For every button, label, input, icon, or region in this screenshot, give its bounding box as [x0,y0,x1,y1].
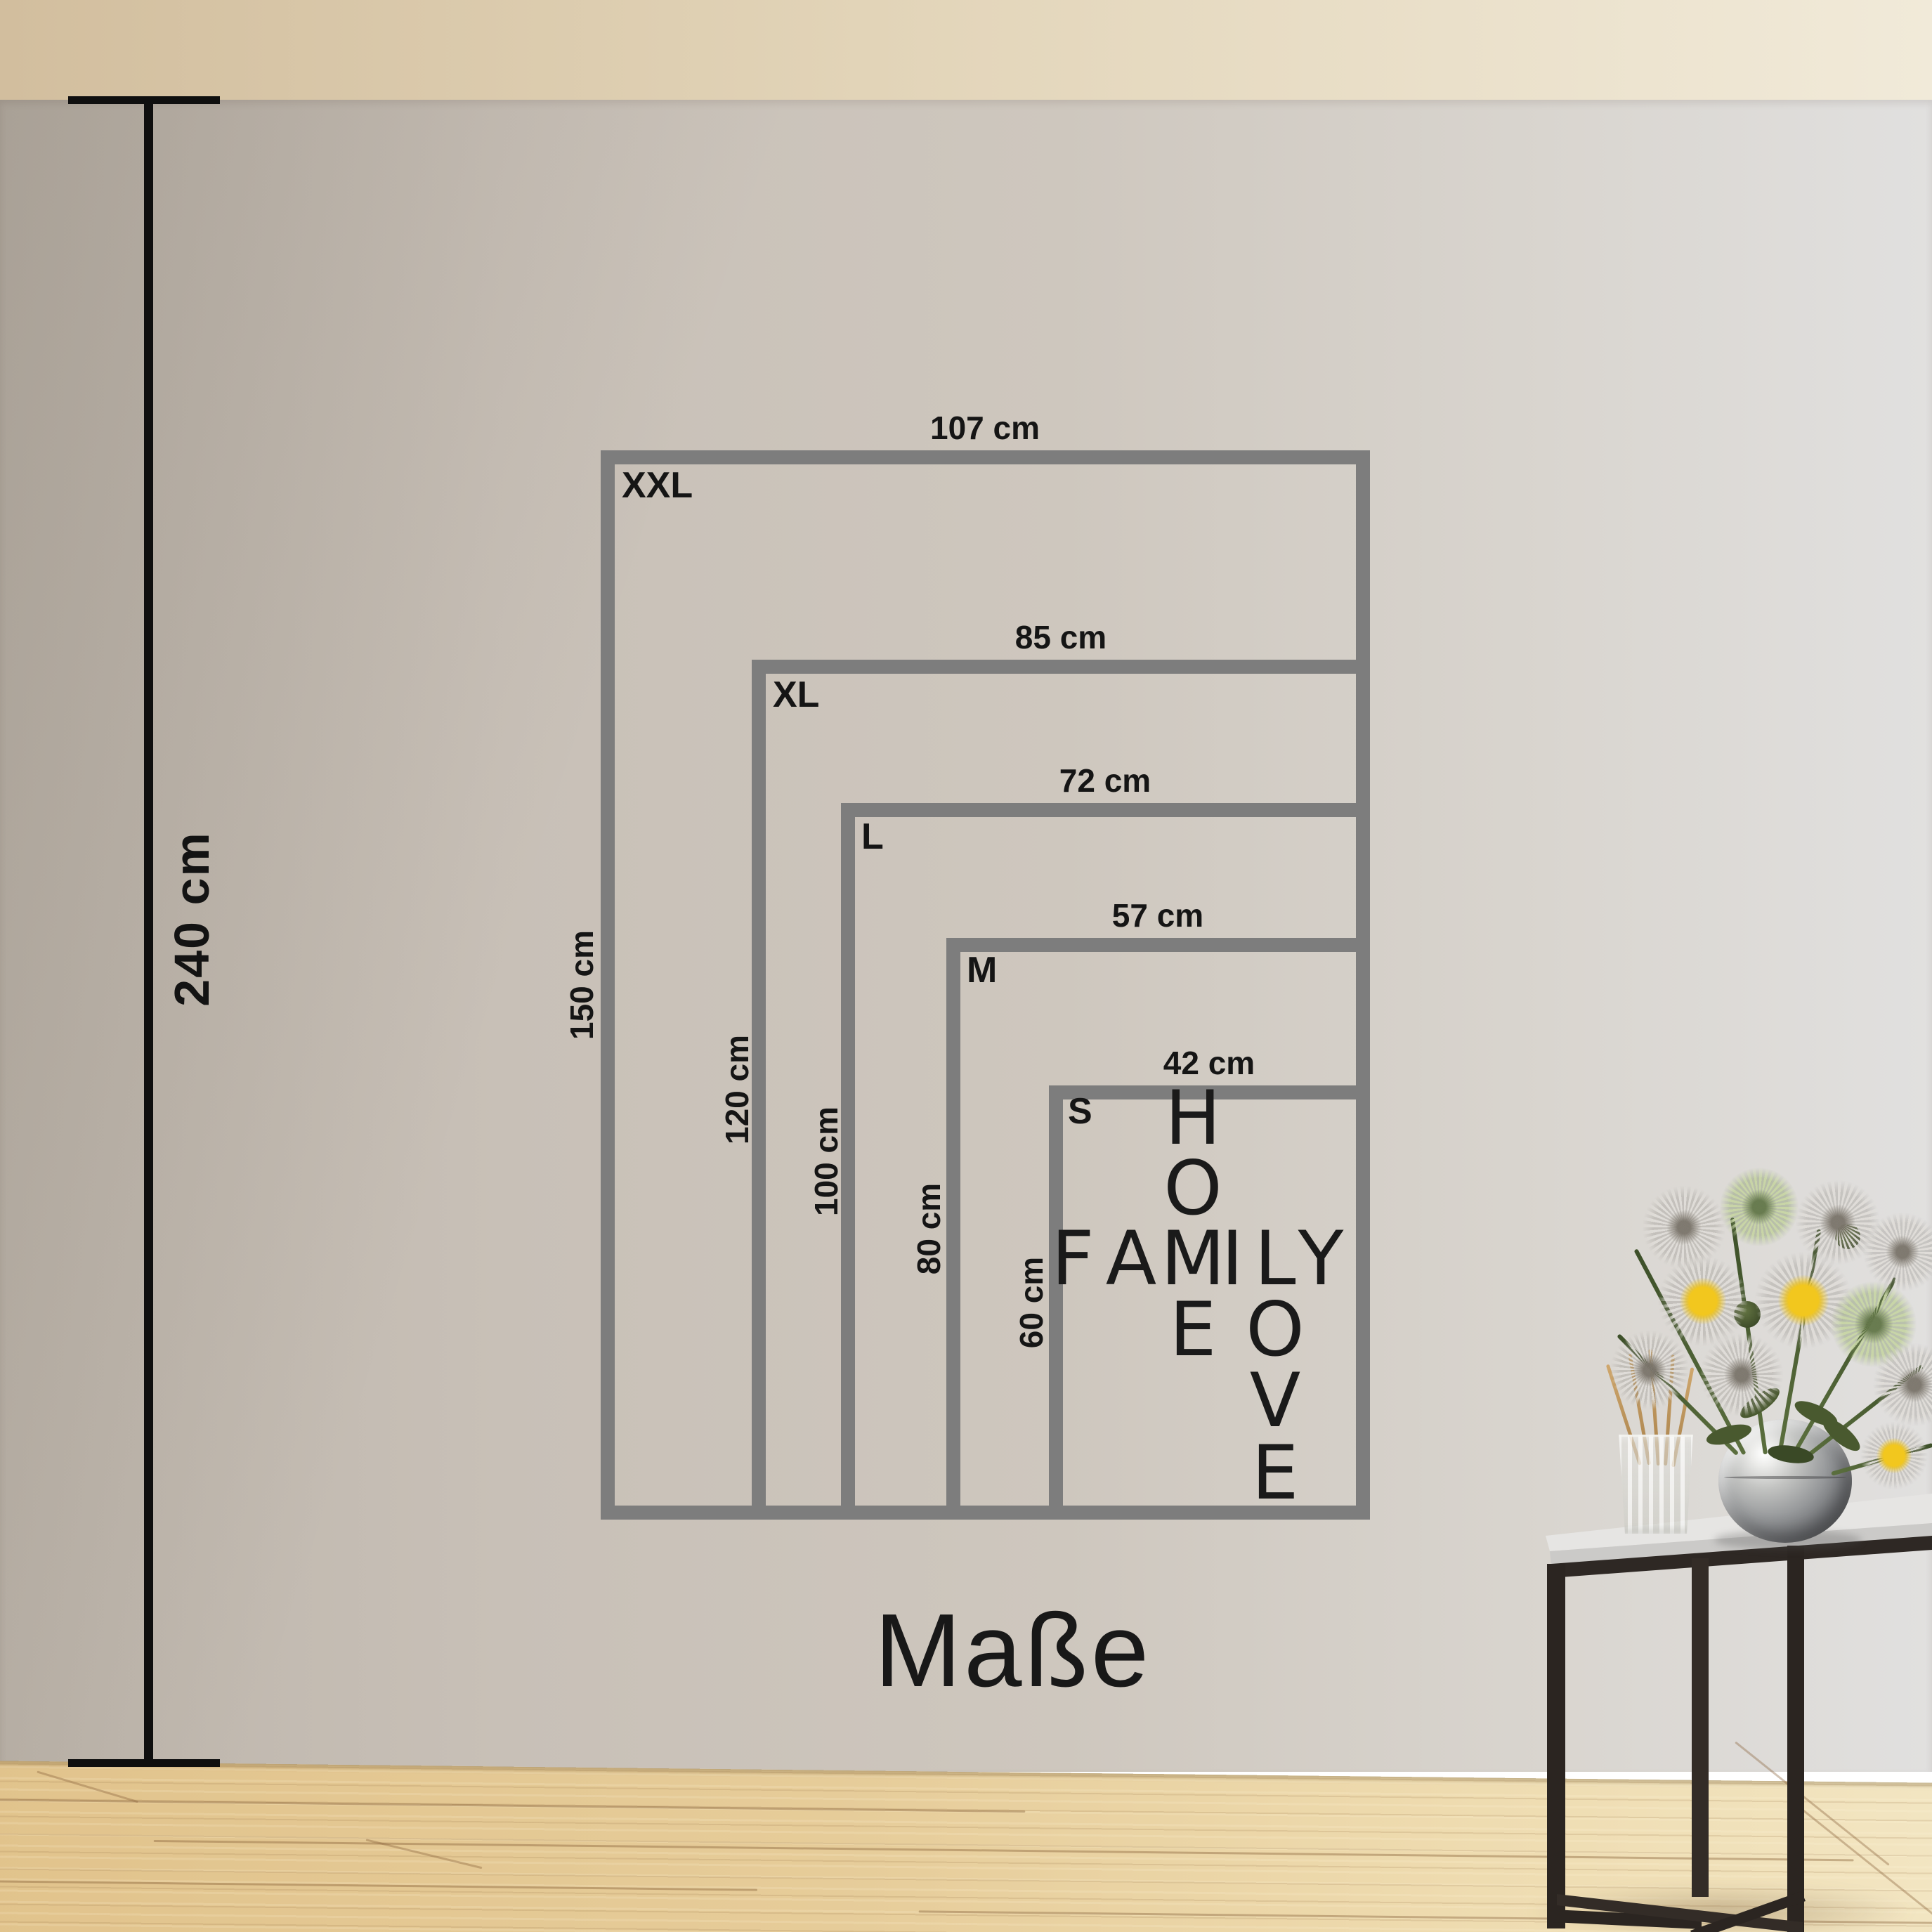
height-label-l: 100 cm [810,1056,842,1267]
wordart-letter: O [1238,1293,1312,1367]
height-label-xl: 120 cm [721,984,753,1195]
size-label-l: L [861,818,884,855]
width-label-m: 57 cm [1052,899,1263,932]
measure-cap-bottom [68,1759,220,1767]
ceiling [0,0,1932,103]
wordart-letter: E [1156,1293,1230,1367]
page-title: Maße [802,1596,1224,1705]
size-label-m: M [967,952,997,988]
flower-head [1643,1186,1725,1269]
width-label-xxl: 107 cm [880,412,1090,444]
plank-seam [37,1770,138,1803]
height-label-m: 80 cm [913,1123,945,1334]
width-label-l: 72 cm [1000,764,1210,797]
flower-head [1700,1333,1783,1416]
flower-head [1720,1168,1799,1246]
width-label-xl: 85 cm [955,621,1166,653]
size-label-xxl: XXL [622,467,693,504]
wordart-letter: Y [1284,1222,1358,1296]
plank-line [0,1880,757,1891]
room-scene: 240 cm XXL XL L M S 107 cm 85 cm 72 cm 5… [0,0,1932,1932]
height-label-xxl: 150 cm [566,880,598,1090]
flower-head [1610,1331,1689,1409]
measure-line [144,100,153,1765]
plank-line [0,1799,1025,1813]
size-label-s: S [1068,1093,1092,1130]
wordart-letter: E [1238,1436,1312,1510]
wordart-letter: V [1238,1364,1312,1438]
glass-cup [1617,1435,1695,1534]
measure-label: 240 cm [164,778,220,1059]
size-label-xl: XL [773,677,819,713]
flower-head [1658,1256,1748,1346]
